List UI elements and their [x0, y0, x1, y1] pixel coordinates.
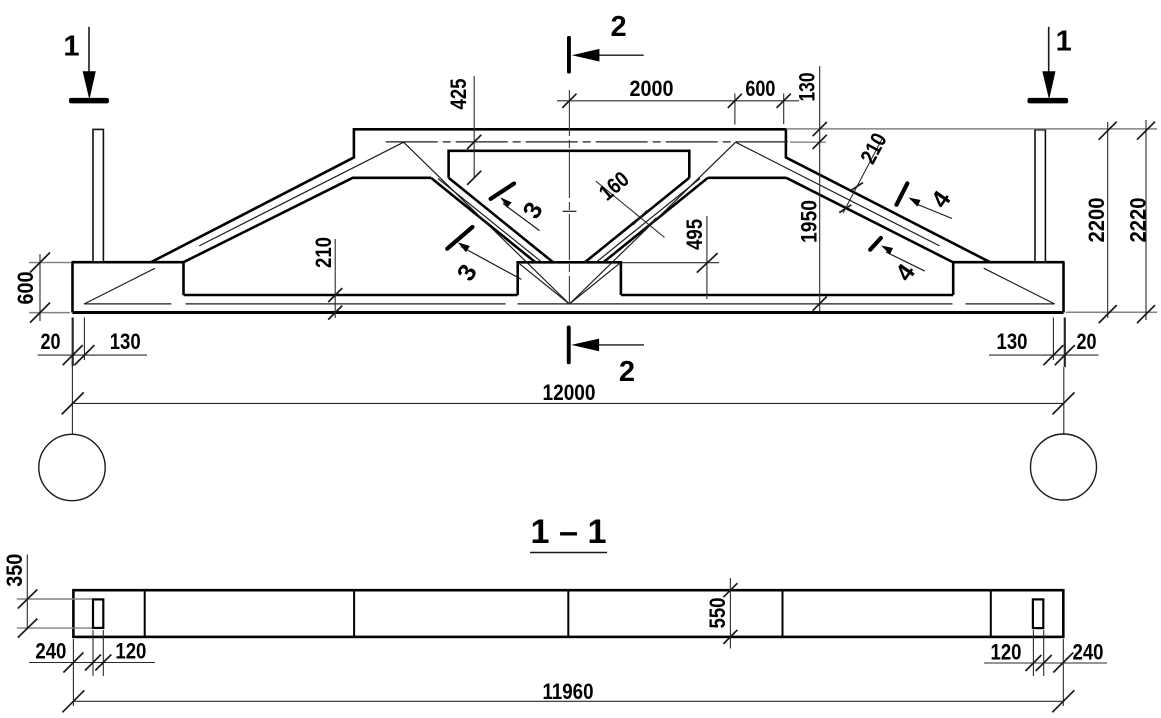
svg-text:130: 130 [110, 329, 141, 354]
svg-text:1: 1 [1056, 25, 1072, 57]
svg-text:4: 4 [890, 259, 921, 287]
svg-text:2200: 2200 [1084, 198, 1109, 243]
svg-text:1: 1 [63, 30, 79, 62]
svg-text:2: 2 [611, 11, 627, 43]
svg-text:2220: 2220 [1126, 198, 1151, 243]
svg-text:130: 130 [795, 73, 820, 102]
svg-text:3: 3 [517, 197, 548, 223]
svg-text:210: 210 [855, 129, 892, 168]
svg-text:130: 130 [997, 329, 1028, 354]
svg-text:1 – 1: 1 – 1 [531, 513, 607, 551]
svg-text:120: 120 [991, 640, 1022, 665]
svg-text:600: 600 [13, 272, 38, 305]
svg-text:495: 495 [682, 219, 707, 250]
svg-text:240: 240 [1073, 640, 1104, 665]
svg-text:1950: 1950 [797, 200, 822, 243]
svg-text:2: 2 [619, 356, 635, 388]
svg-text:600: 600 [745, 76, 775, 101]
svg-text:20: 20 [1077, 329, 1097, 354]
svg-text:3: 3 [452, 260, 483, 286]
svg-text:160: 160 [594, 166, 634, 205]
svg-text:12000: 12000 [543, 380, 596, 405]
svg-text:20: 20 [41, 329, 61, 354]
svg-text:240: 240 [35, 639, 66, 664]
svg-text:120: 120 [115, 639, 146, 664]
svg-text:2000: 2000 [630, 76, 674, 101]
svg-text:11960: 11960 [543, 679, 594, 704]
svg-text:350: 350 [2, 554, 27, 587]
svg-text:550: 550 [705, 598, 730, 629]
svg-text:210: 210 [311, 237, 336, 268]
svg-text:425: 425 [446, 79, 471, 110]
